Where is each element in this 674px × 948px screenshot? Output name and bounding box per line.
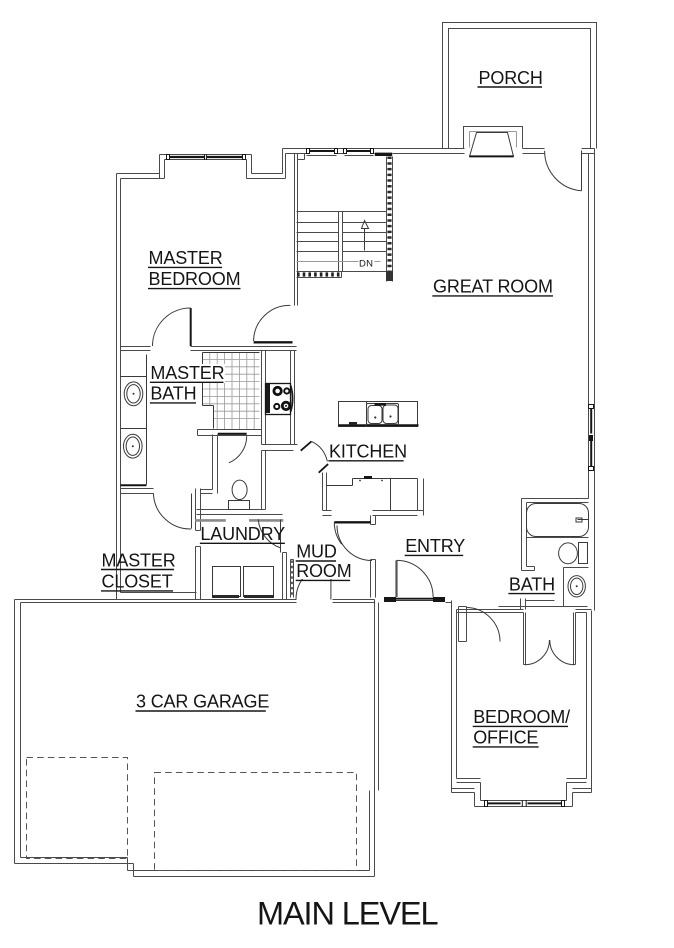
svg-text:3 CAR GARAGE: 3 CAR GARAGE [136, 692, 269, 712]
svg-text:MASTER: MASTER [150, 363, 224, 383]
svg-text:ENTRY: ENTRY [405, 536, 465, 556]
svg-text:DN: DN [359, 259, 373, 270]
svg-text:BEDROOM/: BEDROOM/ [473, 707, 570, 727]
svg-text:GREAT ROOM: GREAT ROOM [433, 276, 553, 296]
svg-text:ROOM: ROOM [296, 561, 351, 581]
svg-text:BEDROOM: BEDROOM [149, 269, 241, 289]
svg-text:MASTER: MASTER [149, 248, 223, 268]
svg-text:MAIN LEVEL: MAIN LEVEL [257, 896, 437, 932]
svg-text:KITCHEN: KITCHEN [329, 442, 407, 462]
svg-text:CLOSET: CLOSET [102, 572, 173, 592]
svg-text:OFFICE: OFFICE [473, 728, 538, 748]
svg-text:MUD: MUD [296, 542, 337, 562]
svg-text:MASTER: MASTER [102, 550, 176, 570]
svg-text:PORCH: PORCH [479, 68, 543, 88]
svg-text:BATH: BATH [509, 574, 555, 594]
svg-text:BATH: BATH [150, 384, 196, 404]
svg-text:LAUNDRY: LAUNDRY [200, 524, 285, 544]
